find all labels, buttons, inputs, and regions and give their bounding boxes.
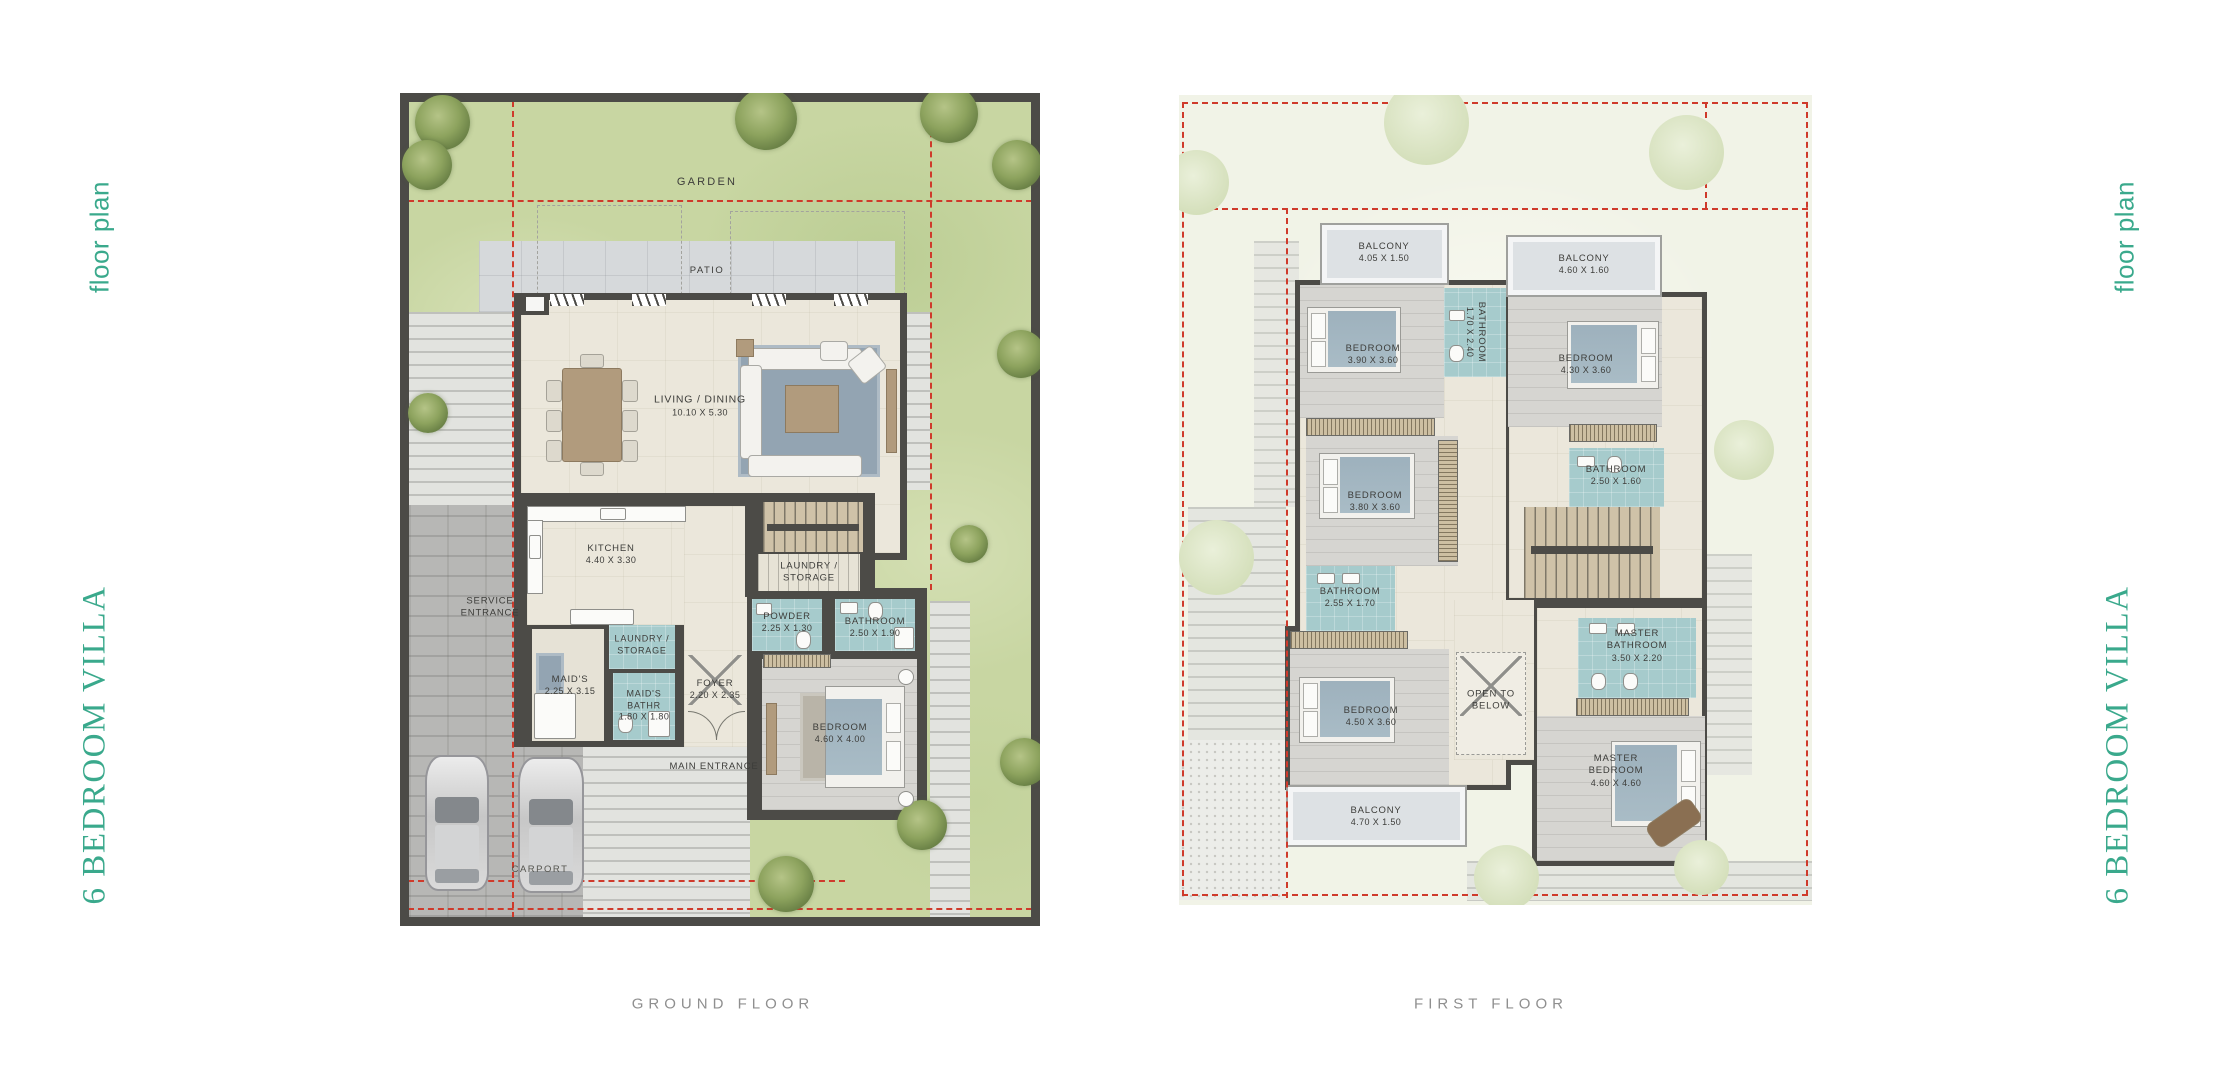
dining-chair [546,440,562,462]
room-name: SERVICE ENTRANCE [448,596,532,621]
boundary-wall [1031,93,1040,926]
room-label-bathroom: BATHROOM 2.50 X 1.90 [845,616,906,640]
dining-chair [546,380,562,402]
bed-pillow [1311,341,1326,367]
nightstand [898,669,914,685]
sideboard [886,369,897,453]
right-villa-title: 6 BEDROOM VILLA [2100,586,2137,905]
patio-label: PATIO [690,265,725,277]
room-dims: 4.30 X 3.60 [1559,365,1614,377]
stair-rail [767,524,859,531]
sink-icon [1342,573,1360,584]
room-label-laundry-storage: LAUNDRY / STORAGE [604,633,680,656]
room-dims: 2.25 X 1.30 [762,623,812,635]
left-villa-title: 6 BEDROOM VILLA [77,586,114,905]
first-floor-caption: FIRST FLOOR [1414,996,1568,1013]
room-dims: 4.05 X 1.50 [1358,253,1409,265]
room-dims: 10.10 X 5.30 [654,407,746,419]
tree [735,93,797,150]
dining-chair [580,462,604,476]
room-label-bathroom-mr: BATHROOM 2.50 X 1.60 [1586,464,1647,488]
room-name: BALCONY [1558,253,1609,265]
room-label-bedroom-ll: BEDROOM 4.50 X 3.60 [1344,705,1399,729]
room-label-laundry-storage-stairs: LAUNDRY / STORAGE [761,561,857,586]
room-name: LIVING / DINING [654,393,746,407]
room-label-maids: MAID'S 2.25 X 3.15 [545,674,595,698]
bed-pillow [1681,750,1696,782]
room-name: BEDROOM [1348,490,1403,502]
car-rear-window [435,869,479,883]
dining-chair [622,380,638,402]
bed-pillow [886,741,901,771]
room-label-bedroom: BEDROOM 4.60 X 4.00 [813,722,868,746]
room-name: BATHROOM [1586,464,1647,476]
bed-pillow [1323,459,1338,485]
wardrobe [763,654,831,668]
room-label-master-bedroom: MASTER BEDROOM 4.60 X 4.60 [1571,753,1661,789]
maids-bed [534,693,576,739]
bed-pillow [1641,356,1656,382]
boundary-wall [400,917,1040,926]
room-dims: 3.80 X 3.60 [1348,502,1403,514]
bed-pillow [1323,487,1338,513]
room-label-balcony-bl: BALCONY 4.70 X 1.50 [1350,805,1401,829]
label-service-entrance: SERVICE ENTRANCE [448,596,532,621]
left-floor-plan-title: floor plan [85,181,116,293]
room-label-living-dining: LIVING / DINING 10.10 X 5.30 [654,393,746,418]
bedroom-dresser [766,703,777,775]
dining-chair [622,440,638,462]
sofa [748,455,862,477]
room-name: BATHROOM [845,616,906,628]
red-plot-line [930,101,932,590]
room-label-bedroom-tl: BEDROOM 3.90 X 3.60 [1346,343,1401,367]
room-dims: 4.60 X 1.60 [1558,265,1609,277]
tree [920,93,978,143]
room-dims: 4.70 X 1.50 [1350,817,1401,829]
room-dims: 1.70 X 2.40 [1463,302,1475,363]
bed-pillow [886,703,901,733]
room-dims: 2.50 X 1.60 [1586,476,1647,488]
room-label-balcony-tr: BALCONY 4.60 X 1.60 [1558,253,1609,277]
room-label-kitchen: KITCHEN 4.40 X 3.30 [586,543,636,567]
room-name: BEDROOM [1344,705,1399,717]
carport-side-paving [583,743,679,917]
room-name: LAUNDRY / STORAGE [604,633,680,656]
faint-tree [1714,420,1774,480]
label-main-entrance: MAIN ENTRANCE [668,761,760,773]
folding-door-icon [752,294,786,306]
car-roof [529,827,573,869]
red-plot-boundary [1182,102,1808,896]
room-dims: 3.50 X 2.20 [1594,653,1680,665]
folding-door-icon [550,294,584,306]
room-name: MASTER BATHROOM [1594,628,1680,653]
first-floor-plan: BALCONY 4.05 X 1.50 BALCONY 4.60 X 1.60 … [1179,95,1812,905]
room-label-bedroom-tr: BEDROOM 4.30 X 3.60 [1559,353,1614,377]
room-name: BEDROOM [1559,353,1614,365]
wc-icon [1449,345,1464,362]
room-name: BATHROOM [1475,302,1487,363]
tree [992,140,1040,190]
pergola-outline [730,211,905,305]
right-floor-plan-title: floor plan [2110,181,2141,293]
room-name: FOYER [690,678,740,690]
room-name: OPEN TO BELOW [1459,689,1523,714]
tree [758,856,814,912]
room-dims: 2.20 X 2.35 [690,690,740,702]
tree [997,330,1040,378]
room-name: BALCONY [1350,805,1401,817]
folding-door-icon [834,294,868,306]
tree [408,393,448,433]
car-windshield [435,797,479,823]
room-name: MAID'S [545,674,595,686]
tree [1000,738,1040,786]
wc-icon [1623,673,1638,690]
car-roof [435,825,479,867]
room-name: BEDROOM [813,722,868,734]
kitchen-sink-icon [529,535,541,559]
ground-floor-caption: GROUND FLOOR [632,996,815,1013]
dining-table [562,368,622,462]
shaft-x-mark [526,297,544,311]
ground-floor-plan: GARDEN PATIO LIVING / DINING 10.10 X 5.3… [400,93,1040,926]
room-name: MAID'S BATHR [612,688,676,711]
car [425,755,489,891]
room-dims: 3.90 X 3.60 [1346,355,1401,367]
faint-tree [1179,520,1254,595]
room-dims: 2.25 X 3.15 [545,686,595,698]
red-plot-line [408,908,1032,910]
garden-steps-right-lower [930,601,970,917]
cooktop-icon [600,508,626,520]
room-name: KITCHEN [586,543,636,555]
room-dims: 4.50 X 3.60 [1344,717,1399,729]
red-plot-line [512,101,514,918]
dining-chair [546,410,562,432]
armchair [820,341,848,361]
room-label-bathroom-ll: BATHROOM 2.55 X 1.70 [1320,586,1381,610]
bed-pillow [1303,711,1318,737]
tree [897,800,947,850]
nightstand [898,791,914,807]
room-label-bedroom-ml: BEDROOM 3.80 X 3.60 [1348,490,1403,514]
bath-sink-icon [840,602,858,614]
faint-tree [1649,115,1724,190]
room-name: CARPORT [512,864,569,876]
room-dims: 2.50 X 1.90 [845,628,906,640]
faint-tree [1674,840,1729,895]
sink-icon [1317,573,1335,584]
room-dims: 4.60 X 4.60 [1571,778,1661,790]
bed-pillow [1311,313,1326,339]
room-dims: 4.60 X 4.00 [813,734,868,746]
room-label-maids-bath: MAID'S BATHR 1.80 X 1.80 [612,688,676,723]
room-label-balcony-tl: BALCONY 4.05 X 1.50 [1358,241,1409,265]
side-table [736,339,754,357]
dining-chair [622,410,638,432]
room-name: POWDER [762,611,812,623]
room-label-bathroom-top: BATHROOM 1.70 X 2.40 [1463,302,1487,363]
label-open-to-below: OPEN TO BELOW [1459,689,1523,714]
pergola-outline [537,205,682,305]
bed-pillow [1303,683,1318,709]
tree [950,525,988,563]
room-name: BEDROOM [1346,343,1401,355]
tree [402,140,452,190]
kitchen-island [570,609,634,625]
faint-tree [1474,845,1539,905]
folding-door-icon [632,294,666,306]
room-label-powder: POWDER 2.25 X 1.30 [762,611,812,635]
coffee-table [785,385,839,433]
room-name: MASTER BEDROOM [1571,753,1661,778]
brochure-page: { "side": { "floor_plan": "floor plan", … [0,0,2220,1080]
room-name: MAIN ENTRANCE [668,761,760,773]
red-plot-line [1182,208,1808,210]
room-name: LAUNDRY / STORAGE [761,561,857,586]
wc-icon [1591,673,1606,690]
car-windshield [529,799,573,825]
room-label-master-bathroom: MASTER BATHROOM 3.50 X 2.20 [1594,628,1680,664]
red-plot-line [1286,208,1288,898]
room-name: BATHROOM [1320,586,1381,598]
garden-label: GARDEN [677,175,737,189]
bed-pillow [1641,328,1656,354]
room-dims: 4.40 X 3.30 [586,555,636,567]
room-dims: 1.80 X 1.80 [612,712,676,724]
label-carport: CARPORT [512,864,569,876]
dining-chair [580,354,604,368]
boundary-wall [400,93,409,926]
room-dims: 2.55 X 1.70 [1320,598,1381,610]
room-label-foyer: FOYER 2.20 X 2.35 [690,678,740,702]
red-plot-line [408,200,1032,202]
room-name: BALCONY [1358,241,1409,253]
